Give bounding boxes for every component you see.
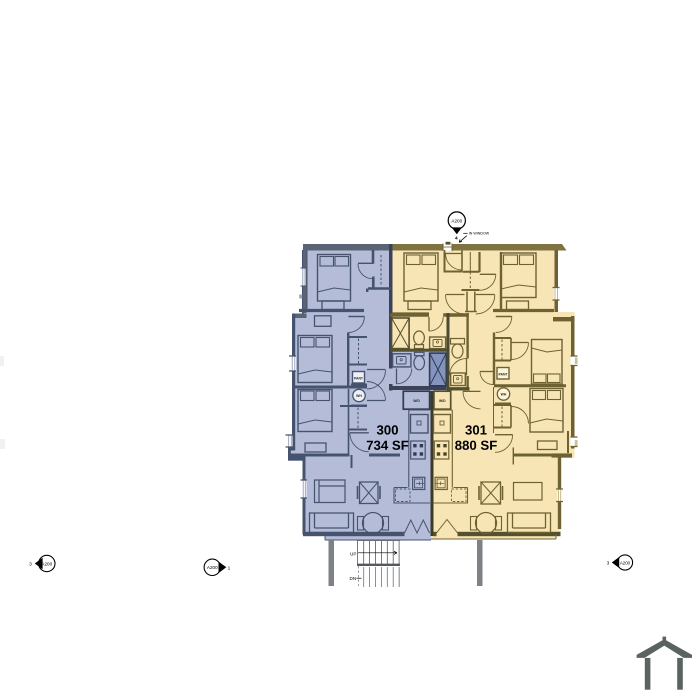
svg-text:W/D: W/D: [413, 399, 420, 403]
svg-text:3: 3: [29, 562, 32, 568]
svg-text:W/D: W/D: [439, 399, 446, 403]
svg-text:1: 1: [228, 565, 231, 571]
svg-text:PANT: PANT: [499, 373, 509, 377]
svg-text:A200: A200: [41, 561, 52, 566]
svg-text:WH: WH: [501, 393, 507, 397]
svg-text:3: 3: [607, 561, 610, 567]
svg-text:4: 4: [455, 235, 458, 241]
svg-text:DN: DN: [350, 576, 357, 581]
svg-text:A200: A200: [451, 218, 462, 223]
svg-text:WH: WH: [356, 394, 362, 398]
svg-text:A200: A200: [207, 565, 218, 570]
svg-text:UP: UP: [350, 552, 356, 557]
svg-text:PANT: PANT: [354, 377, 364, 381]
svg-text:A200: A200: [620, 560, 631, 565]
svg-text:IN WINDOW: IN WINDOW: [469, 232, 490, 236]
